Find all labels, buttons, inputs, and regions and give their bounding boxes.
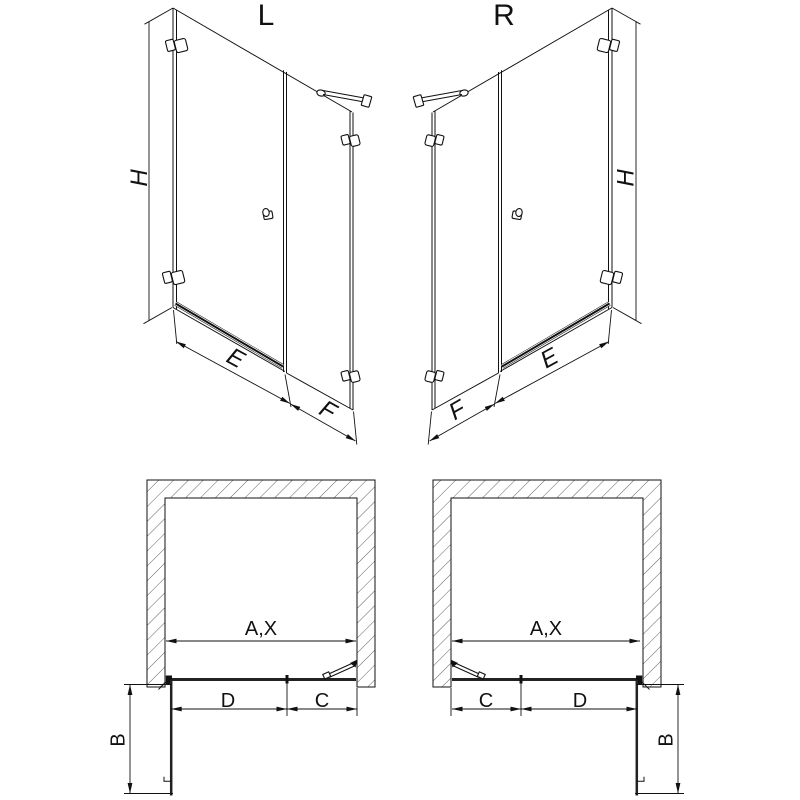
wall-clamp-bottom-icon	[425, 368, 445, 385]
shower-door-technical-diagram: L	[0, 0, 800, 800]
door-knob-icon	[262, 208, 273, 220]
dim-F: F	[428, 394, 494, 444]
glass-panels	[432, 8, 612, 410]
dim-label-f: F	[315, 395, 342, 426]
dim-AX: A,X	[166, 618, 356, 643]
stabilizer-bar-plan	[323, 660, 358, 680]
door-knob-icon	[512, 208, 523, 220]
dim-AX: A,X	[452, 618, 640, 643]
dim-B: B	[635, 685, 684, 794]
dim-D-C: D C	[171, 683, 357, 716]
hinge-bottom-icon	[600, 268, 623, 287]
dim-label-f: F	[444, 394, 471, 425]
stabilizer-bar-plan	[451, 660, 486, 680]
junction-tick	[520, 675, 523, 684]
dim-label-ax: A,X	[245, 618, 277, 640]
dim-label-b: B	[656, 733, 678, 746]
stabilizer-bar	[316, 89, 372, 107]
dim-label-e: E	[222, 343, 250, 375]
dim-label-c: C	[479, 690, 493, 712]
wall-hatched	[433, 480, 661, 687]
dim-C-D: C D	[451, 683, 637, 716]
dim-label-ax: A,X	[530, 618, 562, 640]
wall-clamp-top-icon	[341, 132, 361, 149]
view-label-r: R	[493, 0, 515, 32]
top-edge	[433, 8, 612, 112]
wall-clamp-bottom-icon	[341, 368, 361, 385]
dim-F: F	[291, 395, 357, 444]
wall-hatched	[147, 480, 375, 687]
plan-view-left: A,X D C B	[108, 480, 376, 796]
front-view-left: L	[126, 0, 372, 445]
plan-view-right: A,X C D B	[433, 480, 684, 796]
dim-label-d: D	[573, 690, 587, 712]
dim-label-h: H	[126, 169, 153, 187]
front-view-right: R	[413, 0, 641, 445]
dim-label-h: H	[613, 169, 640, 187]
view-label-l: L	[258, 0, 275, 32]
wall-clamp-top-icon	[425, 132, 445, 149]
dim-B: B	[108, 685, 174, 794]
dim-label-d: D	[221, 690, 235, 712]
dim-label-e: E	[536, 342, 564, 374]
junction-tick	[286, 675, 289, 684]
hinge-bottom-icon	[162, 268, 185, 287]
glass-panels	[173, 8, 353, 410]
stabilizer-bar	[413, 89, 469, 107]
dim-label-c: C	[315, 690, 329, 712]
dim-label-b: B	[108, 733, 130, 746]
